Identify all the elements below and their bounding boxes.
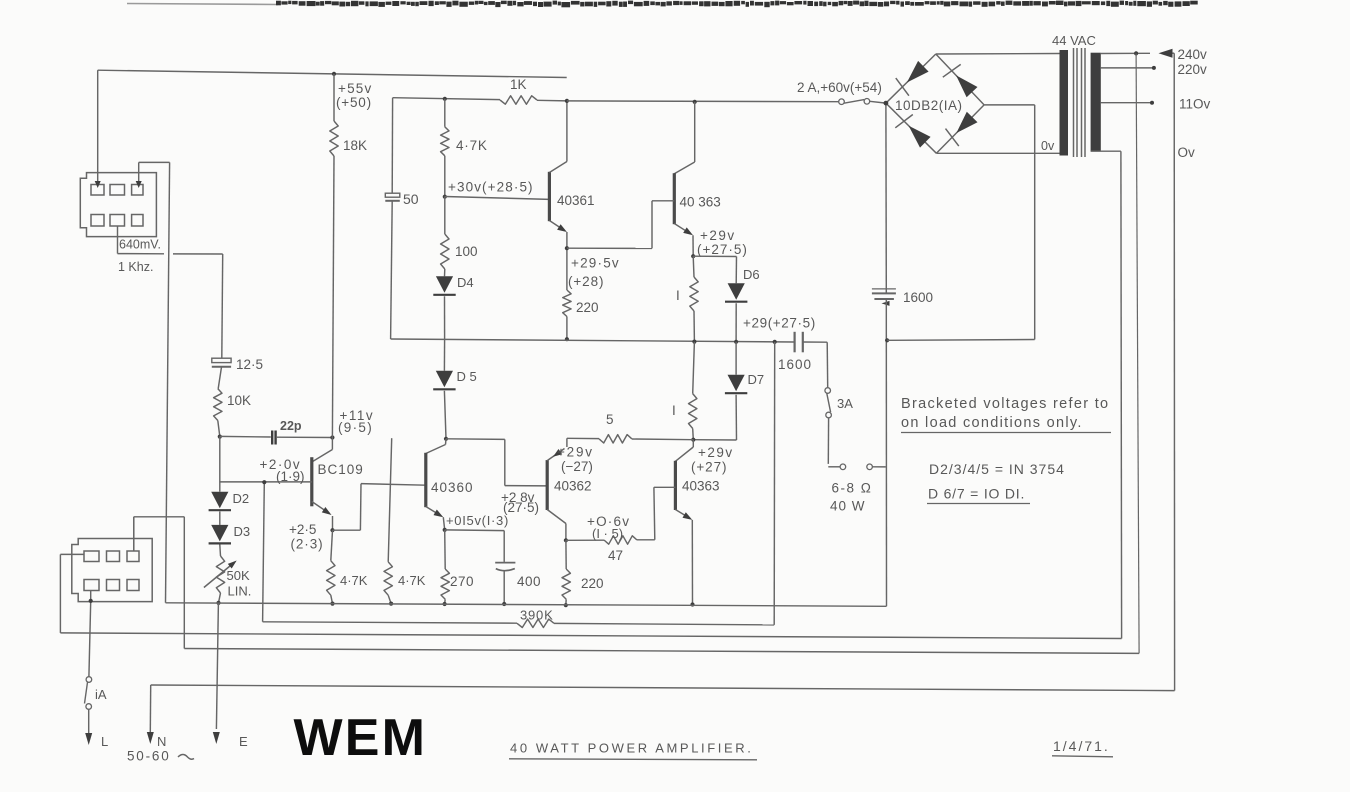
- svg-text:2 A,+60v(+54): 2 A,+60v(+54): [797, 80, 882, 95]
- svg-text:640mV.: 640mV.: [119, 238, 161, 252]
- svg-text:220: 220: [576, 300, 599, 315]
- svg-text:100: 100: [455, 244, 478, 259]
- svg-text:4·7K: 4·7K: [340, 573, 368, 588]
- svg-text:D2: D2: [233, 491, 250, 506]
- svg-text:10K: 10K: [227, 393, 251, 408]
- svg-text:WEM: WEM: [294, 709, 428, 767]
- svg-text:(+27·5): (+27·5): [697, 242, 748, 257]
- svg-text:+30v(+28·5): +30v(+28·5): [448, 180, 534, 195]
- svg-text:270: 270: [450, 574, 474, 589]
- svg-text:5: 5: [606, 412, 614, 427]
- svg-text:40361: 40361: [557, 193, 595, 208]
- svg-text:1600: 1600: [778, 357, 812, 372]
- svg-text:50-60: 50-60: [127, 749, 171, 764]
- svg-text:I: I: [676, 288, 680, 303]
- svg-text:40 363: 40 363: [680, 195, 721, 210]
- svg-text:Ov: Ov: [1178, 145, 1196, 160]
- svg-text:D7: D7: [748, 372, 765, 387]
- svg-text:(9·5): (9·5): [338, 420, 373, 435]
- svg-text:D4: D4: [457, 275, 474, 290]
- svg-text:(I · 5): (I · 5): [592, 526, 623, 541]
- svg-text:40 W: 40 W: [830, 499, 866, 514]
- svg-text:I: I: [672, 403, 676, 418]
- svg-text:240v: 240v: [1178, 47, 1208, 62]
- svg-text:LIN.: LIN.: [228, 584, 252, 599]
- svg-text:1600: 1600: [903, 290, 933, 305]
- svg-text:12·5: 12·5: [236, 357, 263, 372]
- svg-text:+29v: +29v: [700, 228, 736, 243]
- svg-text:4·7K: 4·7K: [398, 573, 426, 588]
- svg-text:1K: 1K: [510, 77, 527, 92]
- svg-text:D6: D6: [743, 267, 760, 282]
- svg-text:47: 47: [608, 548, 623, 563]
- svg-text:L: L: [101, 734, 108, 749]
- svg-text:+2·5: +2·5: [289, 522, 316, 537]
- svg-text:220: 220: [581, 576, 604, 591]
- svg-text:(+50): (+50): [336, 95, 372, 110]
- svg-text:40 WATT POWER AMPLIFIER.: 40 WATT POWER AMPLIFIER.: [510, 741, 753, 756]
- svg-text:+55v: +55v: [338, 81, 372, 96]
- svg-text:50K: 50K: [227, 568, 250, 583]
- svg-text:1/4/71.: 1/4/71.: [1053, 738, 1110, 754]
- svg-text:4·7K: 4·7K: [456, 138, 488, 153]
- svg-text:44 VAC: 44 VAC: [1052, 33, 1096, 48]
- svg-text:D 6/7 = IO DI.: D 6/7 = IO DI.: [928, 486, 1025, 502]
- svg-text:D3: D3: [234, 524, 251, 539]
- svg-text:(+28): (+28): [568, 274, 604, 289]
- svg-text:D 5: D 5: [457, 369, 477, 384]
- svg-text:40362: 40362: [554, 479, 592, 494]
- svg-text:Bracketed voltages refer to: Bracketed voltages refer to: [901, 396, 1109, 412]
- svg-text:11Ov: 11Ov: [1179, 97, 1211, 112]
- svg-text:D2/3/4/5 = IN 3754: D2/3/4/5 = IN 3754: [929, 461, 1065, 477]
- svg-text:18K: 18K: [343, 138, 367, 153]
- svg-text:3A: 3A: [837, 396, 853, 411]
- svg-text:390K: 390K: [520, 608, 554, 623]
- svg-text:+29v: +29v: [698, 445, 734, 460]
- svg-text:(27·5): (27·5): [503, 500, 539, 515]
- svg-text:on load conditions only.: on load conditions only.: [901, 415, 1083, 431]
- svg-text:6-8 Ω: 6-8 Ω: [832, 481, 873, 496]
- svg-text:220v: 220v: [1178, 62, 1208, 77]
- svg-text:40363: 40363: [682, 479, 720, 494]
- svg-text:+29·5v: +29·5v: [571, 256, 620, 271]
- svg-text:(1·9): (1·9): [276, 469, 305, 484]
- svg-text:+29(+27·5): +29(+27·5): [743, 316, 816, 331]
- svg-text:BC109: BC109: [318, 462, 364, 477]
- svg-text:0v: 0v: [1041, 139, 1055, 153]
- svg-text:(2·3): (2·3): [291, 537, 324, 552]
- svg-text:50: 50: [403, 191, 419, 207]
- svg-text:+0I5v(I·3): +0I5v(I·3): [446, 513, 509, 528]
- svg-text:40360: 40360: [431, 480, 474, 495]
- svg-text:N: N: [157, 734, 166, 749]
- svg-text:1 Khz.: 1 Khz.: [118, 260, 153, 274]
- svg-text:(−27): (−27): [561, 459, 593, 474]
- svg-text:E: E: [239, 734, 248, 749]
- svg-text:(+27): (+27): [691, 460, 727, 475]
- svg-text:10DB2(IA): 10DB2(IA): [895, 98, 963, 113]
- svg-text:+29v: +29v: [557, 445, 594, 460]
- svg-text:iA: iA: [95, 687, 107, 702]
- svg-text:400: 400: [517, 574, 541, 589]
- svg-text:22p: 22p: [280, 419, 302, 433]
